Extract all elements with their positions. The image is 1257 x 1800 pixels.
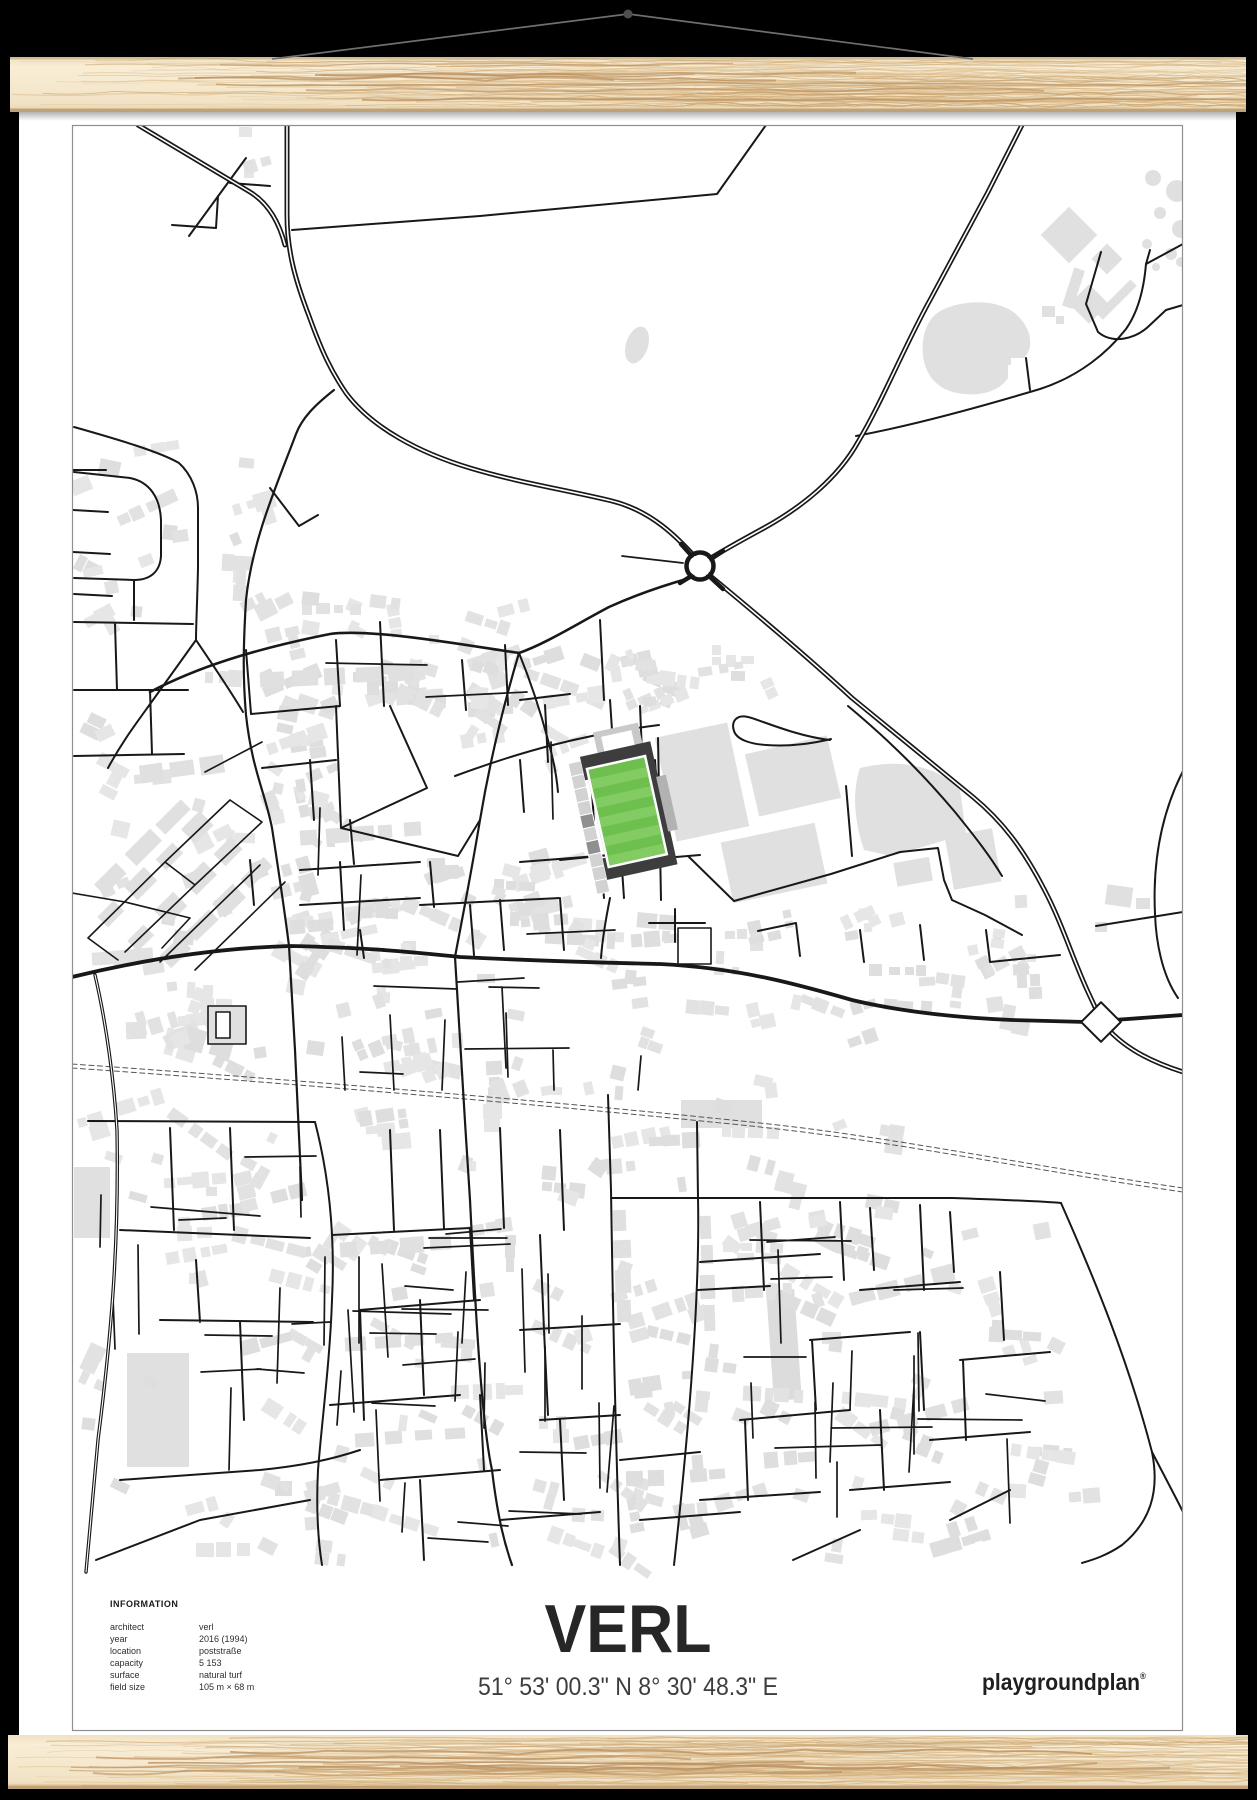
svg-text:poststraße: poststraße — [199, 1646, 242, 1656]
svg-text:INFORMATION: INFORMATION — [110, 1599, 178, 1609]
svg-text:field size: field size — [110, 1682, 145, 1692]
svg-text:2016 (1994): 2016 (1994) — [199, 1634, 248, 1644]
svg-text:year: year — [110, 1634, 128, 1644]
svg-text:105 m × 68 m: 105 m × 68 m — [199, 1682, 254, 1692]
svg-text:VERL: VERL — [545, 1591, 712, 1667]
svg-text:architect: architect — [110, 1622, 145, 1632]
svg-text:5 153: 5 153 — [199, 1658, 222, 1668]
svg-text:playgroundplan®: playgroundplan® — [982, 1669, 1146, 1695]
svg-text:surface: surface — [110, 1670, 140, 1680]
svg-text:verl: verl — [199, 1622, 214, 1632]
svg-text:natural turf: natural turf — [199, 1670, 243, 1680]
svg-text:location: location — [110, 1646, 141, 1656]
svg-text:capacity: capacity — [110, 1658, 144, 1668]
svg-text:51° 53' 00.3" N 8° 30' 48.3" E: 51° 53' 00.3" N 8° 30' 48.3" E — [478, 1673, 778, 1701]
